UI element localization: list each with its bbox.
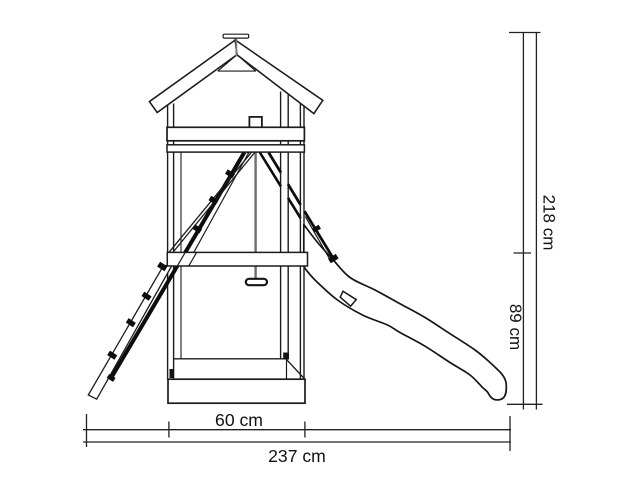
svg-text:237 cm: 237 cm bbox=[268, 446, 326, 466]
svg-text:89 cm: 89 cm bbox=[506, 304, 525, 350]
svg-text:218 cm: 218 cm bbox=[539, 195, 558, 251]
svg-text:60 cm: 60 cm bbox=[215, 410, 263, 430]
